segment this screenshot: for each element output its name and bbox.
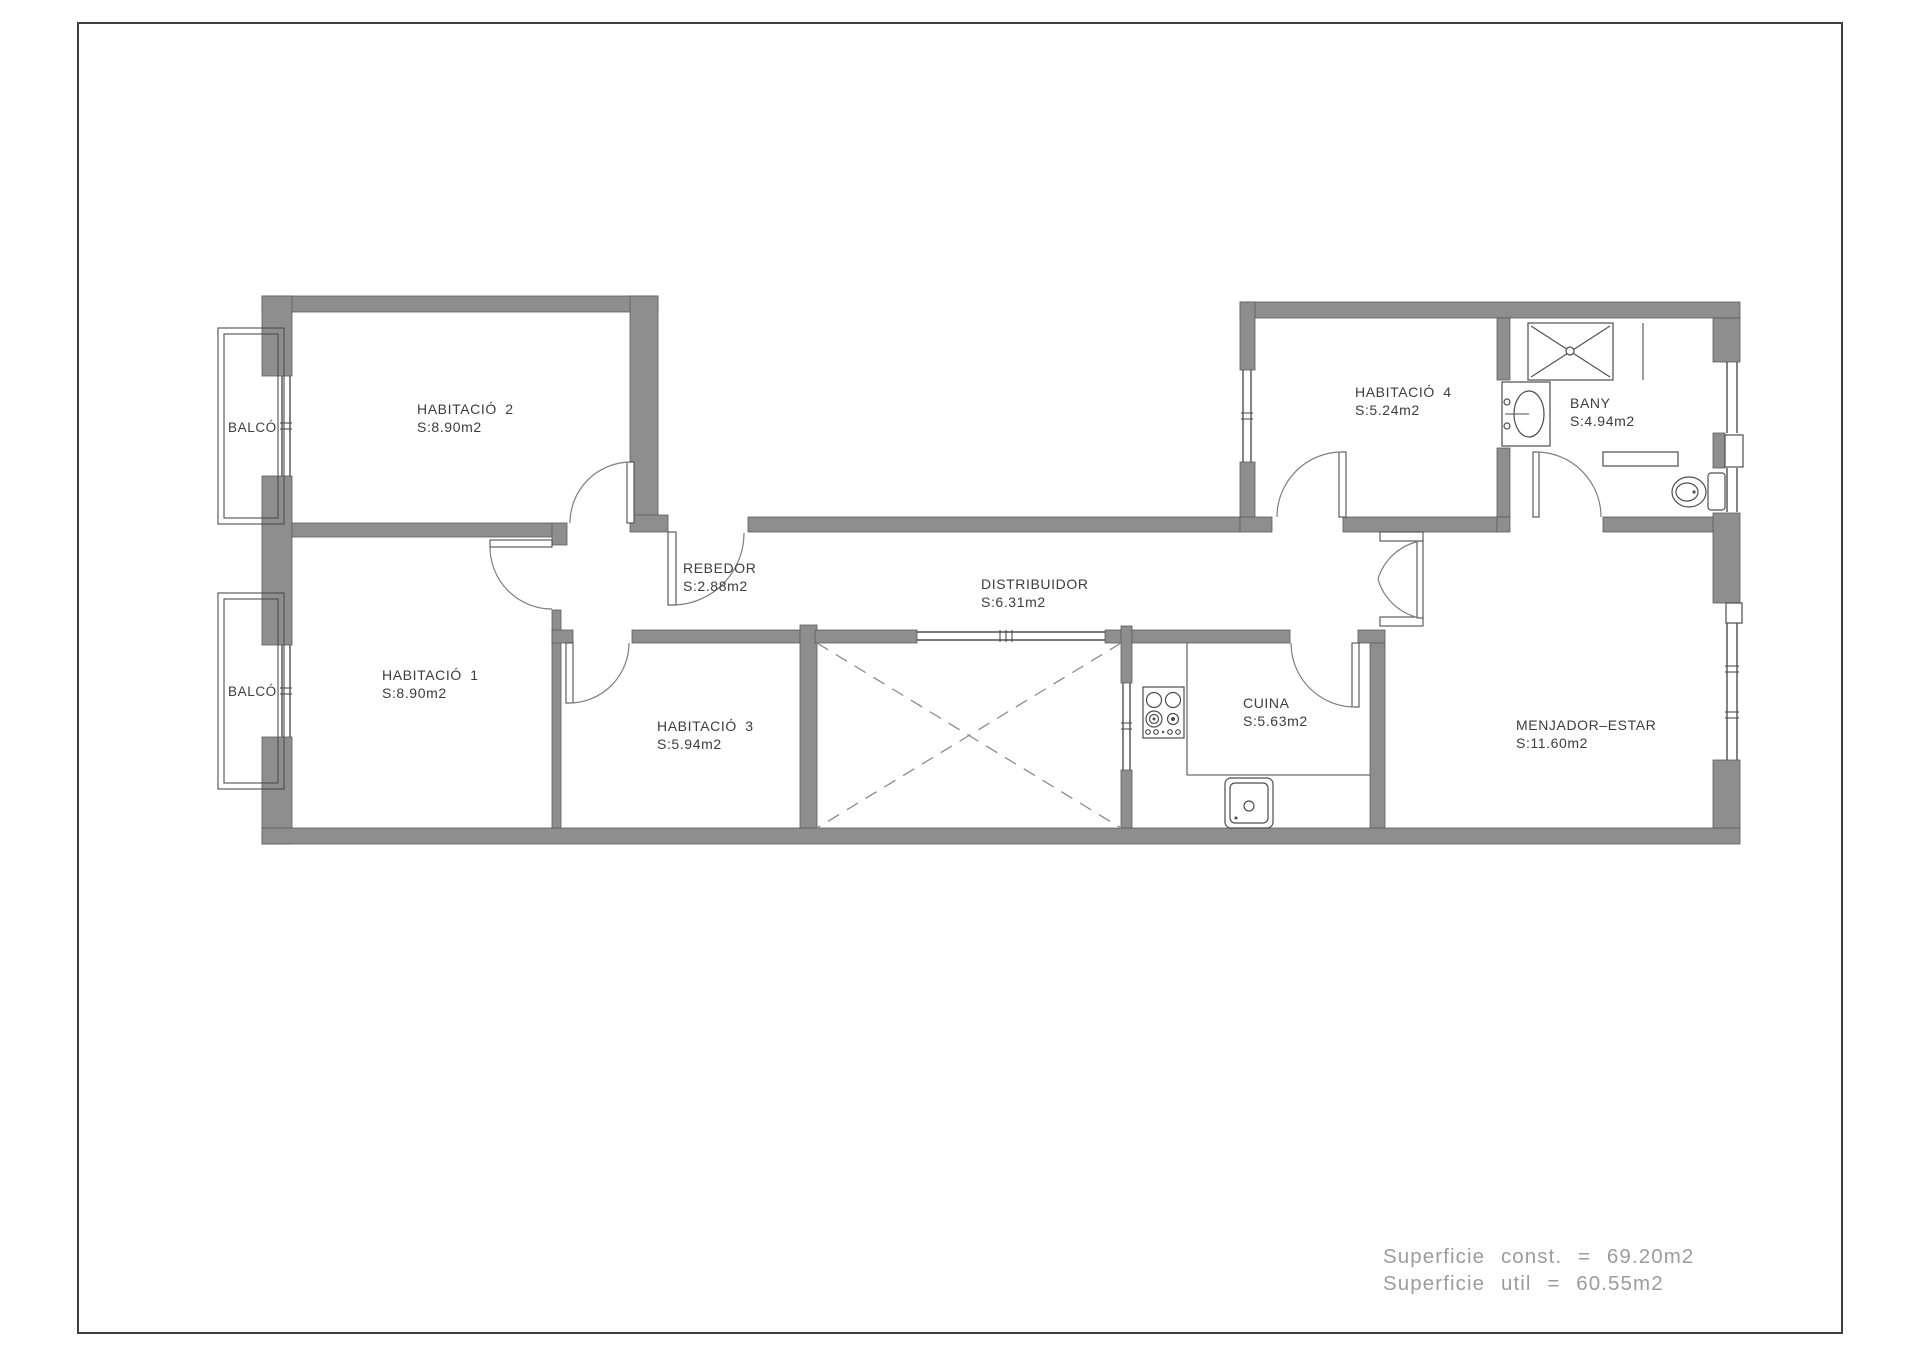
- wall: [262, 828, 1740, 844]
- floor-plan-drawing: HABITACIÓ 2 S:8.90m2 HABITACIÓ 1 S:8.90m…: [0, 0, 1920, 1357]
- wall: [1121, 626, 1132, 683]
- door-habitacio1-icon: [490, 540, 552, 609]
- window-balcony-2-icon: [280, 645, 292, 737]
- wall: [292, 523, 552, 537]
- wall: [1713, 760, 1740, 828]
- door-habitacio3-icon: [566, 643, 629, 703]
- wall: [1105, 630, 1121, 643]
- wall: [1240, 302, 1740, 318]
- wall: [552, 523, 567, 545]
- bathroom-sink-icon: [1502, 382, 1550, 446]
- floor-plan-page: HABITACIÓ 2 S:8.90m2 HABITACIÓ 1 S:8.90m…: [0, 0, 1920, 1357]
- window-balcony-1-icon: [280, 376, 292, 476]
- balcony-1-label: BALCÓ: [228, 420, 277, 435]
- wall: [630, 515, 668, 532]
- room-label-habitacio1-name: HABITACIÓ 1: [382, 667, 479, 683]
- page-border: [78, 23, 1842, 1333]
- stove-icon: [1143, 687, 1184, 738]
- swing-door-menjador-icon: [1378, 532, 1423, 626]
- toilet-icon: [1672, 473, 1725, 510]
- room-label-bany-area: S:4.94m2: [1570, 413, 1635, 429]
- wall: [1240, 517, 1272, 532]
- room-label-cuina-name: CUINA: [1243, 695, 1290, 711]
- wall: [1713, 433, 1725, 468]
- wall: [1603, 517, 1713, 532]
- wall: [1132, 630, 1290, 643]
- door-bany-icon: [1533, 452, 1601, 517]
- room-label-habitacio4-name: HABITACIÓ 4: [1355, 384, 1452, 400]
- windows: [280, 362, 1743, 770]
- surface-useful-text: Superficie util = 60.55m2: [1383, 1272, 1664, 1295]
- wall: [1358, 630, 1385, 643]
- window-cuina-icon: [1121, 683, 1132, 770]
- room-label-habitacio1-area: S:8.90m2: [382, 685, 447, 701]
- wall: [1497, 448, 1510, 517]
- wall: [1497, 517, 1510, 532]
- balcony-2-label: BALCÓ: [228, 684, 277, 699]
- surface-built-text: Superficie const. = 69.20m2: [1383, 1245, 1694, 1268]
- room-label-cuina-area: S:5.63m2: [1243, 713, 1308, 729]
- room-label-habitacio3-name: HABITACIÓ 3: [657, 718, 754, 734]
- window-sill-box-icon: [1726, 603, 1742, 623]
- room-label-bany-name: BANY: [1570, 395, 1611, 411]
- wall: [552, 630, 573, 643]
- shower-icon: [1528, 323, 1643, 380]
- kitchen-sink-icon: [1225, 778, 1273, 828]
- window-sill-box-icon: [1725, 435, 1743, 467]
- wall: [1240, 302, 1255, 370]
- wall: [815, 630, 917, 643]
- room-label-rebedor-area: S:2.88m2: [683, 578, 748, 594]
- wall: [1713, 318, 1740, 362]
- wall: [1713, 513, 1740, 603]
- window-menjador-icon: [1725, 623, 1739, 760]
- room-label-distribuidor-name: DISTRIBUIDOR: [981, 576, 1089, 592]
- door-habitacio4-icon: [1277, 452, 1346, 517]
- door-cuina-icon: [1291, 643, 1359, 707]
- room-label-distribuidor-area: S:6.31m2: [981, 594, 1046, 610]
- wall: [262, 476, 292, 645]
- room-label-rebedor-name: REBEDOR: [683, 560, 756, 576]
- wall: [800, 625, 817, 828]
- window-patio-strip-icon: [917, 630, 1105, 642]
- wall: [1343, 517, 1497, 532]
- wall: [1370, 643, 1385, 828]
- walls: [262, 296, 1740, 844]
- bany-stub-wall: [1603, 452, 1678, 466]
- wall: [632, 630, 800, 643]
- room-label-menjador-name: MENJADOR–ESTAR: [1516, 717, 1656, 733]
- room-labels: HABITACIÓ 2 S:8.90m2 HABITACIÓ 1 S:8.90m…: [228, 384, 1656, 752]
- room-label-habitacio2-area: S:8.90m2: [417, 419, 482, 435]
- wall: [748, 517, 1240, 532]
- wall: [262, 296, 658, 312]
- door-habitacio2-icon: [570, 462, 634, 523]
- room-label-habitacio3-area: S:5.94m2: [657, 736, 722, 752]
- room-label-habitacio2-name: HABITACIÓ 2: [417, 401, 514, 417]
- wall: [1240, 462, 1255, 517]
- surface-summary: Superficie const. = 69.20m2 Superficie u…: [1383, 1245, 1694, 1295]
- room-label-menjador-area: S:11.60m2: [1516, 735, 1588, 751]
- room-label-habitacio4-area: S:5.24m2: [1355, 402, 1420, 418]
- wall: [1497, 318, 1510, 380]
- wall: [262, 296, 292, 376]
- window-habitacio4-icon: [1241, 370, 1253, 462]
- patio-light-well: [817, 643, 1121, 828]
- wall: [1121, 770, 1132, 828]
